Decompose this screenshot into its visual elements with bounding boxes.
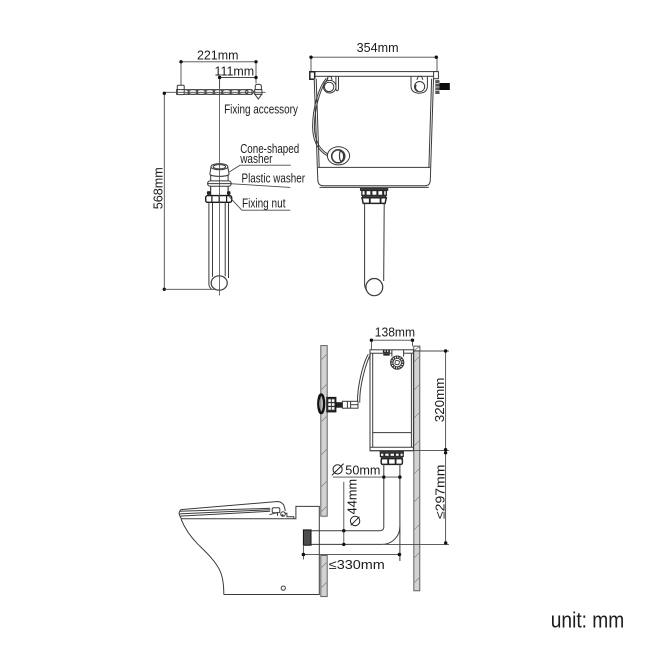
svg-text:unit: mm: unit: mm [551,608,625,633]
svg-text:≤297mm: ≤297mm [432,465,447,520]
svg-text:568mm: 568mm [151,167,166,209]
svg-text:44mm: 44mm [345,479,360,514]
svg-text:320mm: 320mm [432,378,447,423]
svg-text:Fixing accessory: Fixing accessory [224,102,298,117]
svg-text:50mm: 50mm [345,462,380,477]
svg-text:≤330mm: ≤330mm [329,557,385,572]
svg-text:138mm: 138mm [375,324,415,339]
svg-text:Plastic washer: Plastic washer [242,171,306,186]
svg-text:Fixing nut: Fixing nut [242,196,286,211]
svg-text:221mm: 221mm [197,48,239,63]
svg-text:washer: washer [239,151,273,166]
svg-text:354mm: 354mm [357,40,399,55]
